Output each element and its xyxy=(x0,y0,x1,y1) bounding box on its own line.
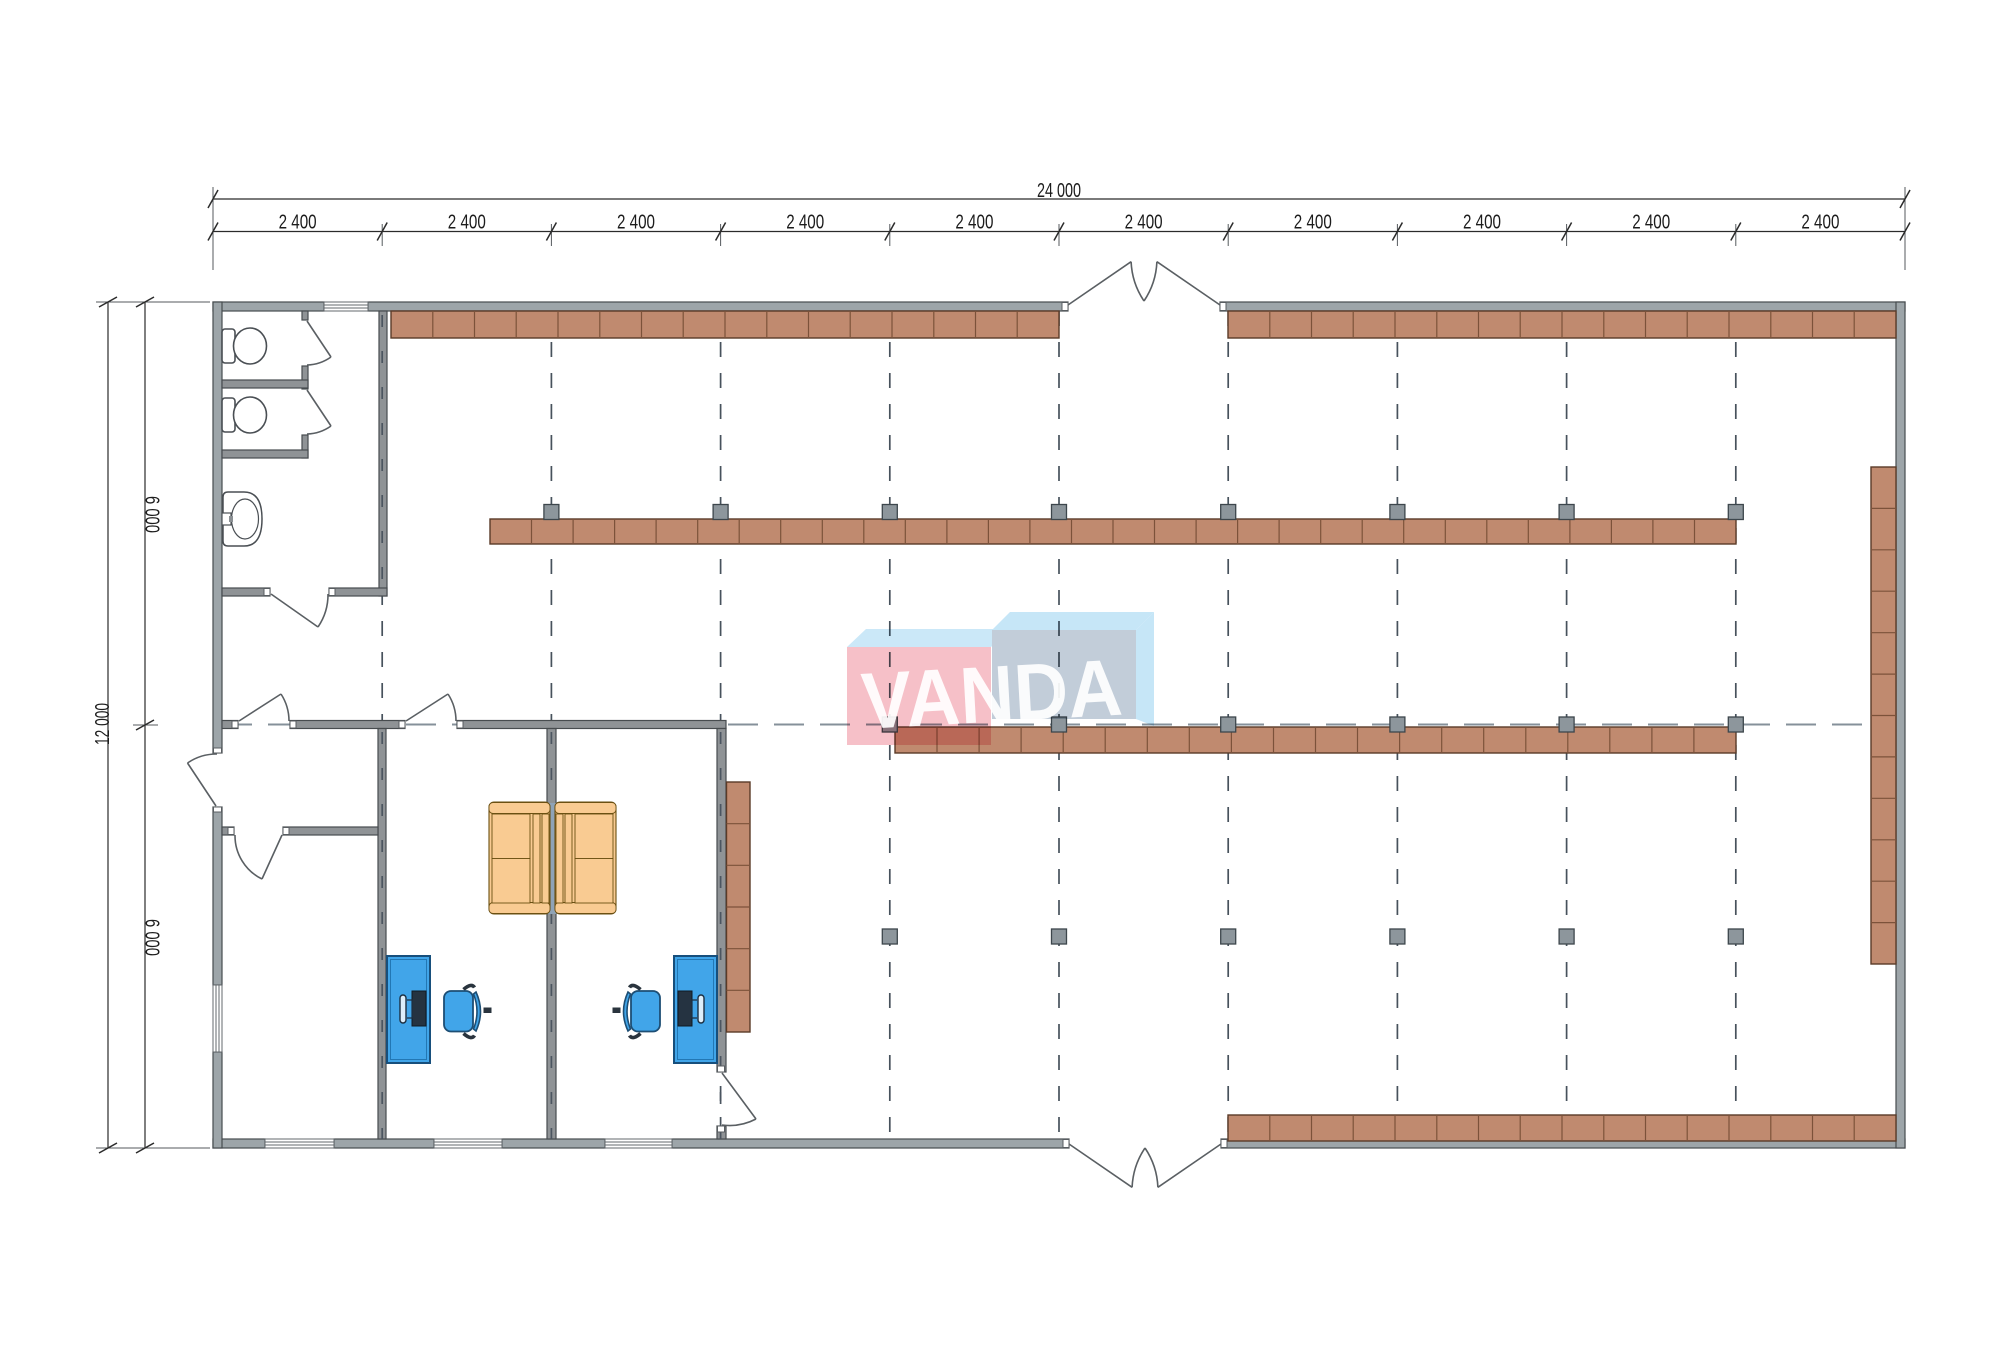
svg-text:6 000: 6 000 xyxy=(141,496,163,533)
svg-text:2 400: 2 400 xyxy=(1125,212,1163,234)
svg-text:6 000: 6 000 xyxy=(141,919,163,956)
svg-text:2 400: 2 400 xyxy=(1294,212,1332,234)
svg-text:2 400: 2 400 xyxy=(1632,212,1670,234)
svg-text:24 000: 24 000 xyxy=(1037,180,1081,202)
svg-text:2 400: 2 400 xyxy=(786,212,824,234)
svg-text:2 400: 2 400 xyxy=(617,212,655,234)
svg-text:2 400: 2 400 xyxy=(279,212,317,234)
svg-text:2 400: 2 400 xyxy=(955,212,993,234)
svg-text:12 000: 12 000 xyxy=(92,703,114,745)
svg-text:2 400: 2 400 xyxy=(1801,212,1839,234)
svg-text:2 400: 2 400 xyxy=(1463,212,1501,234)
svg-text:VANDA: VANDA xyxy=(859,643,1125,746)
svg-text:2 400: 2 400 xyxy=(448,212,486,234)
